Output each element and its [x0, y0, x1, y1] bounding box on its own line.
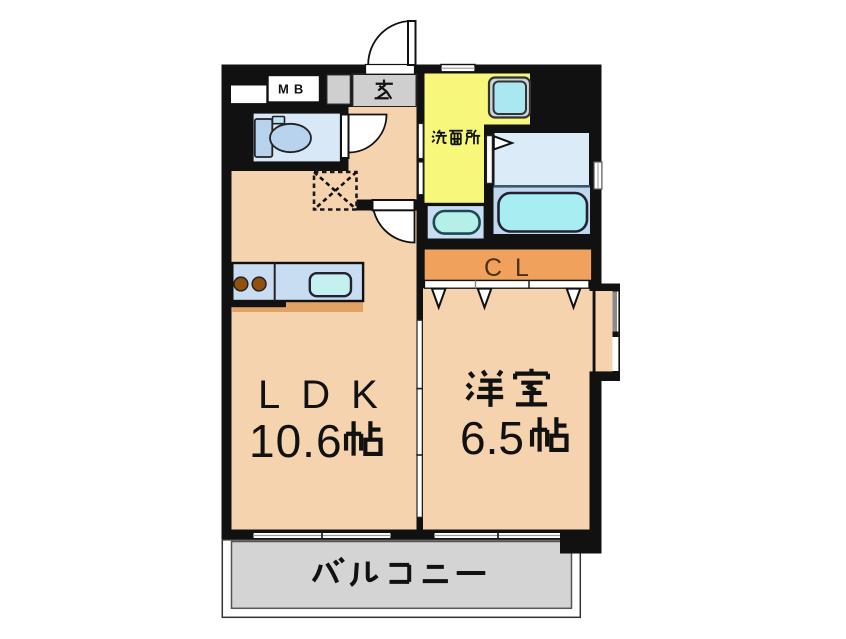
svg-text:CL: CL: [484, 254, 542, 282]
svg-text:6.5: 6.5: [460, 412, 524, 464]
svg-text:MB: MB: [278, 82, 308, 97]
svg-text:6: 6: [316, 415, 342, 467]
svg-text:10.: 10.: [249, 415, 316, 467]
svg-text:LDK: LDK: [258, 373, 399, 417]
